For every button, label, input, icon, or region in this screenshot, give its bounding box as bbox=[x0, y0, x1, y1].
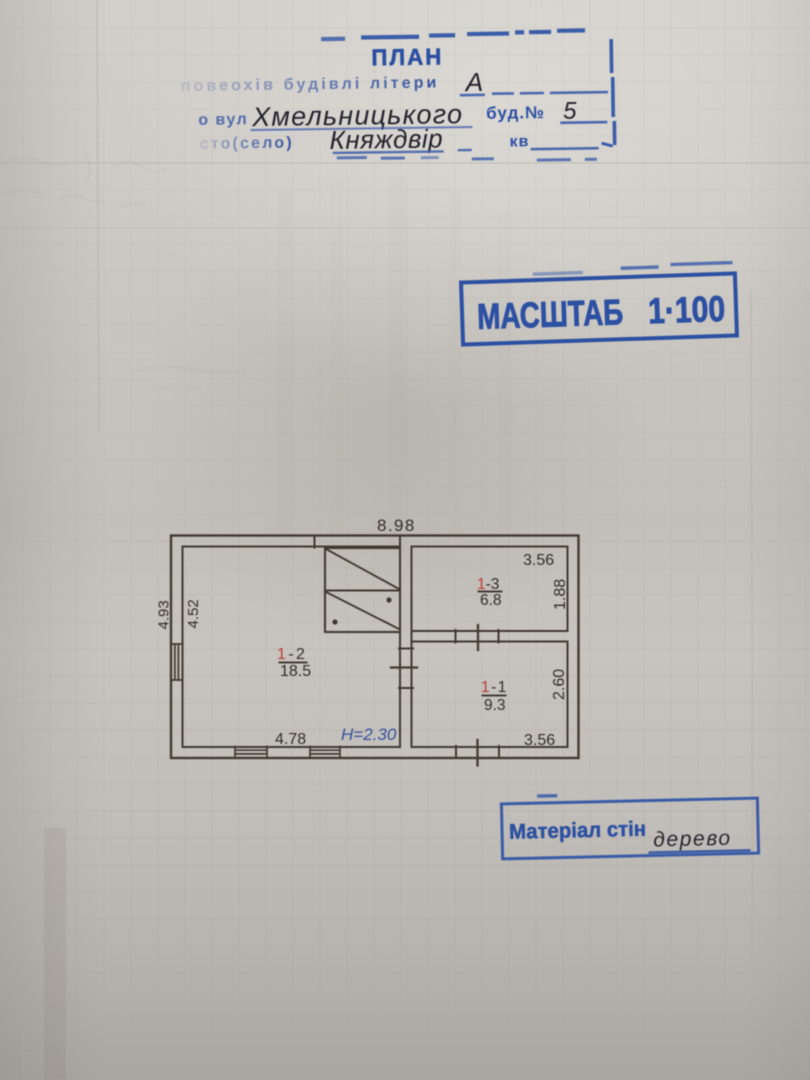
svg-text:1-1: 1-1 bbox=[481, 679, 508, 696]
svg-text:4.93: 4.93 bbox=[156, 600, 173, 629]
svg-text:о вул: о вул bbox=[198, 111, 248, 129]
svg-text:ПЛАН: ПЛАН bbox=[371, 43, 443, 70]
svg-text:6.8: 6.8 bbox=[480, 592, 502, 609]
svg-text:повеохів будівлі літери: повеохів будівлі літери bbox=[181, 74, 440, 95]
svg-text:МАСШТАБ: МАСШТАБ bbox=[477, 291, 624, 337]
svg-text:5: 5 bbox=[563, 98, 577, 125]
svg-text:дерево: дерево bbox=[653, 827, 732, 852]
svg-text:сто(село): сто(село) bbox=[199, 134, 294, 152]
svg-text:А: А bbox=[464, 67, 484, 97]
svg-text:2.60: 2.60 bbox=[551, 669, 568, 700]
svg-text:Княждвір: Княждвір bbox=[329, 123, 443, 155]
svg-text:8.98: 8.98 bbox=[377, 516, 416, 535]
svg-text:кв: кв bbox=[509, 133, 529, 150]
svg-text:4.78: 4.78 bbox=[275, 731, 306, 748]
svg-text:3.56: 3.56 bbox=[524, 732, 555, 749]
svg-text:Матеріал стін: Матеріал стін bbox=[509, 818, 646, 844]
svg-text:4.52: 4.52 bbox=[185, 599, 202, 628]
svg-text:18.5: 18.5 bbox=[280, 663, 311, 680]
svg-text:1-3: 1-3 bbox=[477, 576, 499, 593]
svg-text:буд.№: буд.№ bbox=[486, 103, 545, 123]
svg-text:3.56: 3.56 bbox=[523, 552, 554, 569]
svg-text:1.88: 1.88 bbox=[552, 579, 569, 610]
svg-text:1-2: 1-2 bbox=[277, 646, 307, 663]
svg-text:H=2.30: H=2.30 bbox=[341, 725, 397, 744]
svg-text:1·100: 1·100 bbox=[647, 288, 725, 332]
svg-text:9.3: 9.3 bbox=[484, 697, 506, 714]
